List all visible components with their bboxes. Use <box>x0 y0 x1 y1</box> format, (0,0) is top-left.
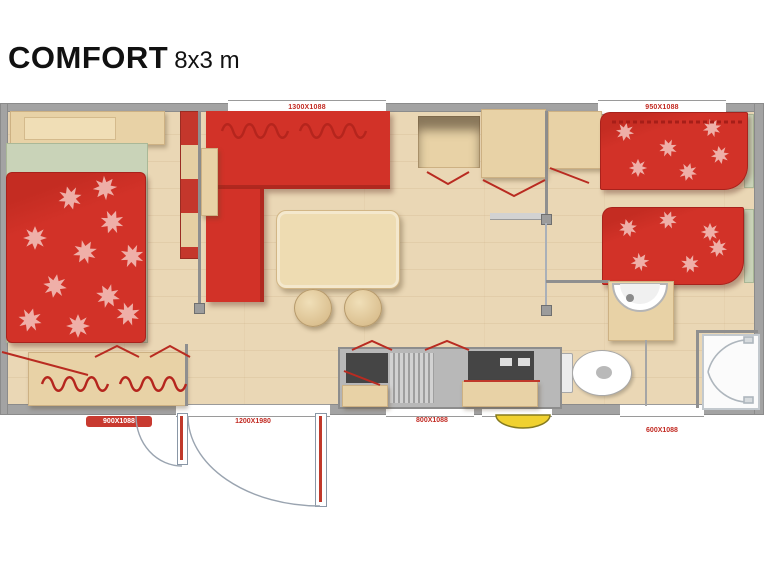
toilet-drain <box>596 366 612 379</box>
bathroom-wall <box>546 280 610 283</box>
bench-side-wall <box>185 344 188 406</box>
overhead-cabinet-2 <box>481 109 546 178</box>
washbasin-counter <box>608 281 674 341</box>
stool-1 <box>294 289 332 327</box>
cooktop-cabinet <box>462 381 538 407</box>
wc-window-label: 600X1088 <box>620 427 704 434</box>
storage-bench <box>28 352 186 406</box>
master-window-label-pill: 900X1088 <box>86 416 152 427</box>
dining-table <box>276 210 400 289</box>
kitchen-window-label: 800X1088 <box>390 417 474 424</box>
side-table <box>201 148 218 216</box>
single-bed-2 <box>602 207 744 285</box>
cooktop-burner-1 <box>500 358 512 366</box>
floorplan-image: COMFORT8x3 m 1300X1088 950X1088 900X1088… <box>0 0 764 573</box>
shower-cabin <box>702 334 760 410</box>
wardrobe <box>180 111 200 259</box>
headboard-shelf <box>24 117 116 140</box>
window-living-label: 1300X1088 <box>288 104 326 111</box>
entrance-door-core-small <box>180 416 183 460</box>
shower-wall-v <box>696 330 699 408</box>
plan-title: COMFORT8x3 m <box>8 40 240 76</box>
entrance-door-label: 1200X1980 <box>176 418 330 425</box>
cooktop-accent-line <box>464 380 540 382</box>
cooktop <box>468 351 534 381</box>
sliding-door-hall <box>545 223 547 307</box>
overhead-cabinet-1 <box>418 116 480 168</box>
model-size: 8x3 m <box>174 47 239 74</box>
cooktop-burner-2 <box>518 358 530 366</box>
corner-sofa-back <box>206 111 390 189</box>
entrance-opening <box>176 404 330 417</box>
window-wc <box>620 404 704 417</box>
double-bed <box>6 172 146 343</box>
sliding-door-handle <box>194 303 205 314</box>
single-bed-2-sheet <box>744 209 754 283</box>
window-twin-top-label: 950X1088 <box>645 104 679 111</box>
shower-wall-h <box>696 330 758 333</box>
wc-wall <box>645 340 647 406</box>
single-bed-1 <box>600 112 748 190</box>
entrance-door-arcs <box>136 416 320 506</box>
model-name: COMFORT <box>8 40 168 75</box>
sink-cabinet <box>342 385 388 407</box>
entrance-door-core-main <box>319 416 322 502</box>
sink <box>346 353 388 383</box>
master-window-label: 900X1088 <box>103 418 135 425</box>
stool-2 <box>344 289 382 327</box>
drainer <box>390 353 434 403</box>
twin-wardrobe <box>548 111 602 169</box>
hall-shelf <box>490 213 546 219</box>
hall-door-handle-2 <box>541 305 552 316</box>
